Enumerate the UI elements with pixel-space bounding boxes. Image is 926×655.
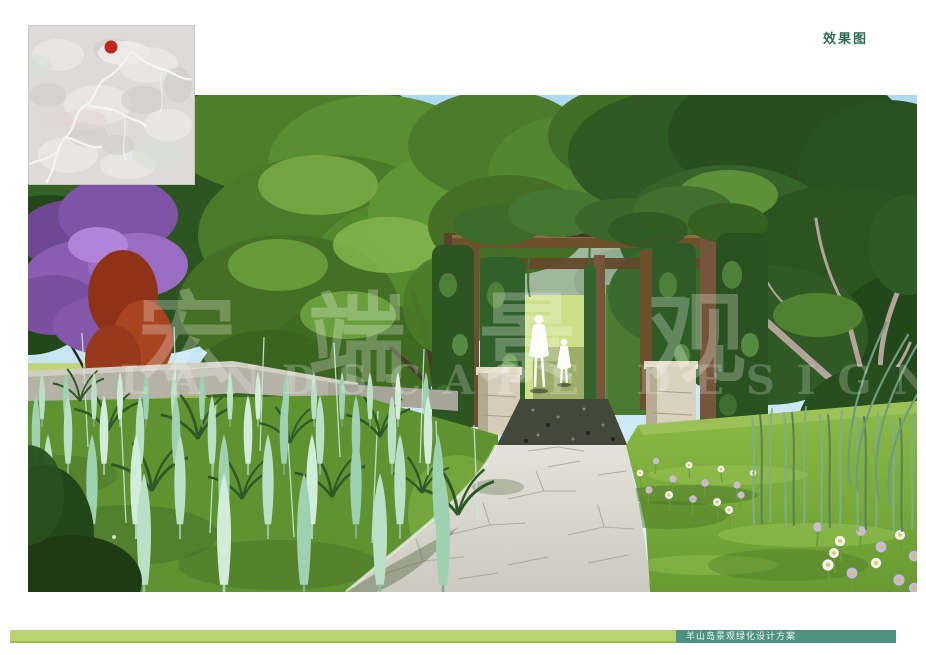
footer-accent-bar	[10, 630, 676, 643]
project-title: 羊山岛景观绿化设计方案	[686, 631, 796, 641]
lawn-right	[608, 401, 917, 592]
site-location-map	[28, 25, 195, 185]
page: { "header": { "page_label": "效果图" }, "fo…	[0, 0, 926, 655]
page-title: 效果图	[823, 28, 868, 47]
footer-title-bar: 羊山岛景观绿化设计方案	[676, 630, 896, 643]
site-marker-dot	[105, 41, 118, 54]
